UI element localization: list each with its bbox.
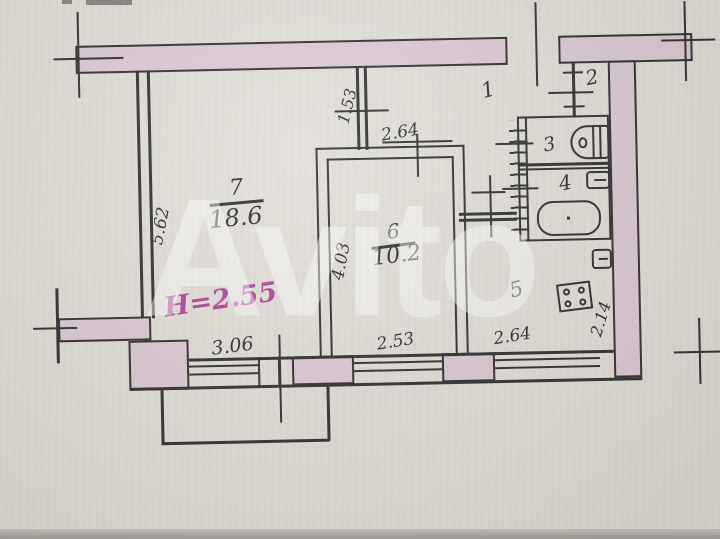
wall-top-right — [558, 33, 693, 64]
kitchen-sink-mark — [599, 258, 608, 260]
room7-left-wall-line — [136, 71, 144, 319]
room2-number: 2 — [584, 66, 600, 88]
window-sill — [189, 364, 260, 367]
room7-number: 7 — [228, 177, 244, 200]
kitchen-door-tick — [489, 175, 492, 237]
stove-burner-icon — [579, 298, 587, 306]
kitchen-wall-line — [459, 218, 517, 222]
wall-right — [608, 60, 643, 378]
toilet-icon — [570, 125, 610, 160]
room6-number: 6 — [386, 221, 401, 242]
wall-step-vertical — [128, 340, 189, 391]
sink-mark — [594, 179, 606, 181]
axis-tick — [674, 350, 720, 353]
photo-edge-mark — [62, 0, 72, 4]
balcony-outline — [326, 387, 330, 441]
bottom-wall-outer-line — [129, 377, 642, 390]
balcony-outline — [160, 390, 164, 444]
wall-pier-between-windows-1 — [292, 355, 355, 385]
room1-number: 1 — [479, 78, 497, 102]
closet-shelf-tick — [564, 105, 585, 107]
photo-edge-mark — [86, 0, 132, 5]
floor-plan-photo: 7 18.6 6 10.2 1 2 3 4 5 5.62 4.03 1.53 2… — [0, 0, 720, 539]
kitchen-wall-line — [459, 212, 517, 216]
window-sill — [354, 360, 442, 364]
stove-icon — [556, 280, 593, 312]
stove-burner-icon — [563, 288, 571, 296]
stove-burner-icon — [577, 286, 585, 294]
kitchen-door-tick — [471, 191, 505, 194]
window-sill — [354, 368, 442, 372]
window-jamb — [258, 357, 261, 386]
window-sill — [189, 372, 260, 375]
axis-tick — [534, 2, 538, 86]
wall-step-horizontal — [58, 316, 151, 342]
window-dim-tick — [278, 335, 282, 423]
bathtub-dot — [567, 217, 570, 220]
window-sill — [495, 365, 600, 369]
photo-bottom-edge — [0, 529, 720, 539]
window-sill — [495, 357, 600, 361]
room7-entry-stub-line — [364, 66, 368, 150]
dim-kitchen-window: 2.64 — [492, 325, 532, 348]
stove-burner-icon — [564, 300, 572, 308]
room7-area: 18.6 — [208, 203, 263, 232]
dim-room7-height: 5.62 — [149, 206, 173, 246]
ceiling-height-note: H=2.55 — [162, 278, 279, 321]
balcony-outline — [162, 439, 330, 445]
apartment-plan: 7 18.6 6 10.2 1 2 3 4 5 5.62 4.03 1.53 2… — [0, 0, 720, 539]
wall-top-left — [75, 37, 507, 74]
wall-hatch — [509, 120, 529, 238]
room6-area: 10.2 — [371, 242, 422, 270]
room7-left-wall-line — [147, 70, 155, 318]
wall-pier-between-windows-2 — [442, 352, 496, 382]
closet-shelf-tick — [548, 91, 593, 94]
closet-shelf-tick — [563, 71, 583, 73]
room5-number: 5 — [507, 278, 525, 302]
dim-room7-width: 3.06 — [210, 335, 254, 359]
